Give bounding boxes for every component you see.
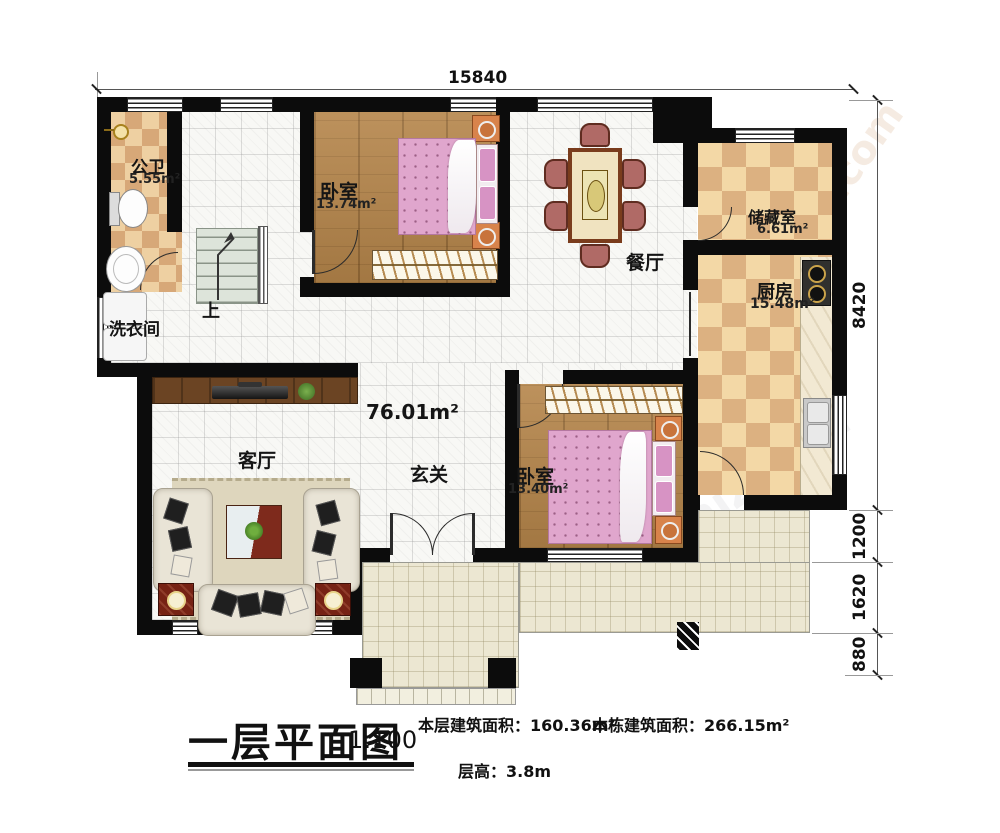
window — [832, 395, 847, 475]
dining-label: 餐厅 — [626, 248, 664, 275]
laundry-label: 洗衣间 — [109, 315, 160, 340]
title-underline — [188, 762, 414, 767]
side-table — [158, 583, 194, 616]
window — [537, 97, 653, 112]
foyer-label: 玄关 — [410, 460, 448, 487]
toilet-bowl — [118, 189, 148, 228]
stairs-up-label: 上 — [202, 297, 220, 323]
side-table — [315, 583, 351, 616]
building-area-line: 本栋建筑面积：266.15m² — [592, 712, 789, 736]
table-centerpiece — [587, 180, 605, 212]
bed-pillow — [479, 186, 496, 220]
stairs-up-arrow — [196, 210, 266, 305]
extension-line — [97, 72, 98, 97]
bathroom-area: 5.55m² — [129, 172, 180, 187]
entry-door-leaf — [472, 513, 475, 555]
building-area-value: 266.15m² — [704, 716, 789, 735]
tv-stand — [238, 382, 262, 387]
porch-pillar — [488, 658, 516, 688]
sofa-pillow — [170, 555, 192, 578]
stove-burner — [808, 265, 826, 283]
plan-scale: 1:100 — [348, 726, 417, 754]
nightstand — [655, 416, 682, 441]
terrace — [698, 510, 810, 563]
bathroom-sink-inner — [113, 254, 139, 284]
window — [127, 97, 183, 112]
floor-area-label: 本层建筑面积： — [418, 716, 530, 735]
table-plant — [245, 522, 263, 540]
dimension-right-880: 880 — [850, 630, 870, 678]
storage-area: 6.61m² — [757, 222, 808, 237]
living-label: 客厅 — [238, 446, 276, 473]
floor-height-line: 层高：3.8m — [458, 758, 551, 782]
entry-steps — [356, 688, 516, 705]
terrace-pillar — [677, 622, 699, 650]
shower-head — [113, 124, 129, 140]
nightstand — [472, 222, 500, 249]
wardrobe — [545, 386, 683, 414]
sofa-pillow — [236, 592, 261, 617]
title-underline-shadow — [188, 769, 414, 771]
dining-chair — [544, 201, 568, 231]
hall-area-label: 76.01m² — [366, 400, 459, 424]
bedroom-bottom-area: 13.40m² — [508, 482, 568, 497]
nightstand — [655, 516, 682, 544]
bed-pillow — [655, 445, 673, 477]
floor-area-line: 本层建筑面积：160.36m² — [418, 712, 615, 736]
extension-line — [849, 100, 893, 101]
building-area-label: 本栋建筑面积： — [592, 716, 704, 735]
bed-pillow — [655, 481, 673, 513]
window — [547, 548, 643, 562]
dimension-line-right — [877, 100, 878, 675]
dimension-line-top — [95, 89, 855, 90]
dimension-right-8420: 8420 — [850, 255, 870, 355]
bed-pillow — [479, 148, 496, 182]
entry-door-leaf — [390, 513, 393, 555]
kitchen-doorway-leaf — [689, 292, 691, 356]
window — [220, 97, 273, 112]
bedroom-bottom-door-leaf — [517, 384, 520, 428]
dimension-right-1620: 1620 — [850, 562, 870, 632]
sink-basin — [807, 402, 829, 423]
sink-basin — [807, 424, 829, 445]
terrace — [519, 562, 810, 633]
dimension-top: 15840 — [448, 68, 507, 88]
dining-chair — [580, 244, 610, 268]
bed-sheet — [620, 432, 646, 542]
bed-sheet — [448, 140, 476, 233]
sofa-pillow — [260, 590, 286, 616]
bedroom-top-area: 13.74m² — [316, 197, 376, 212]
window — [172, 620, 198, 635]
bedroom-top-door-leaf — [312, 230, 315, 274]
sofa-pillow — [168, 526, 192, 552]
shower-arm — [104, 129, 114, 131]
porch-pillar — [350, 658, 382, 688]
dimension-right-1200: 1200 — [850, 506, 870, 566]
dining-chair — [622, 201, 646, 231]
sofa-pillow — [317, 559, 339, 581]
floor-height-value: 3.8m — [506, 762, 551, 781]
dining-chair — [622, 159, 646, 189]
floor-plan-canvas: baijuniz.com baijuniz.com baijuniz.com b… — [0, 0, 1000, 833]
window — [735, 128, 795, 143]
dining-chair — [544, 159, 568, 189]
dining-chair — [580, 123, 610, 147]
wardrobe — [372, 250, 498, 280]
floor-height-label: 层高： — [458, 762, 506, 781]
tv — [212, 386, 288, 399]
nightstand — [472, 115, 500, 142]
kitchen-area: 15.48m² — [750, 296, 815, 312]
plant — [298, 383, 315, 400]
